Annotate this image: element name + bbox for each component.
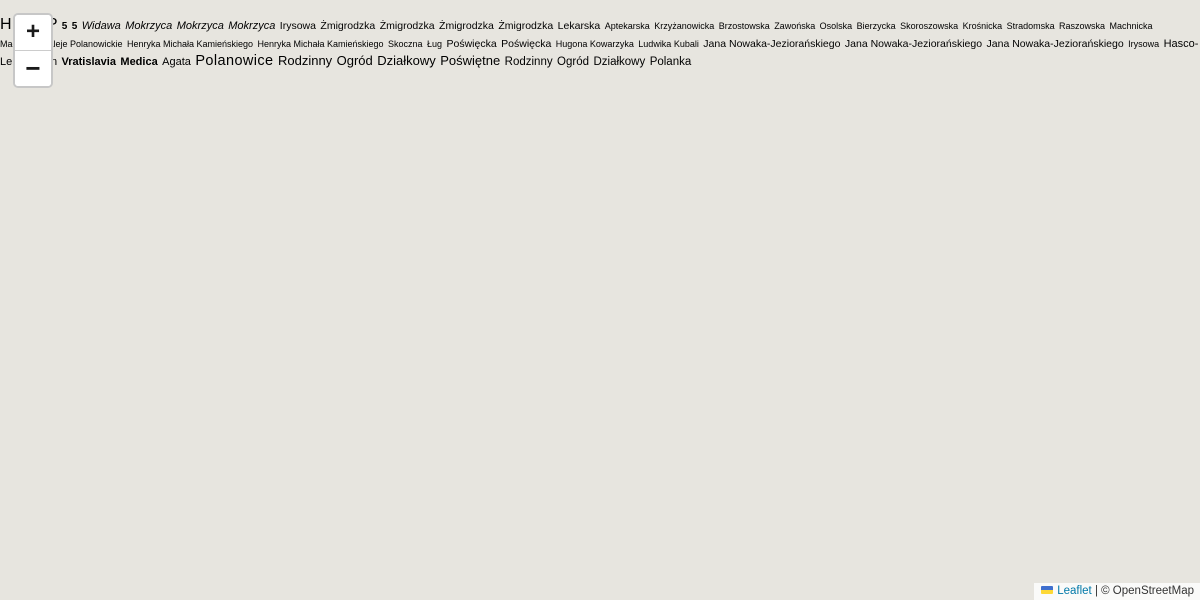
- zoom-control: + −: [13, 13, 53, 88]
- leaflet-link[interactable]: Leaflet: [1057, 585, 1092, 597]
- ukraine-flag-icon: [1041, 586, 1053, 594]
- attribution-divider: |: [1095, 585, 1098, 597]
- attribution-bar: Leaflet | © OpenStreetMap: [1034, 583, 1200, 600]
- zoom-out-button[interactable]: −: [15, 50, 51, 86]
- leaflet-map[interactable]: H H P P 5: [0, 0, 1200, 600]
- osm-link[interactable]: © OpenStreetMap: [1101, 585, 1194, 597]
- zoom-in-button[interactable]: +: [15, 15, 51, 50]
- map-canvas[interactable]: [0, 0, 1200, 600]
